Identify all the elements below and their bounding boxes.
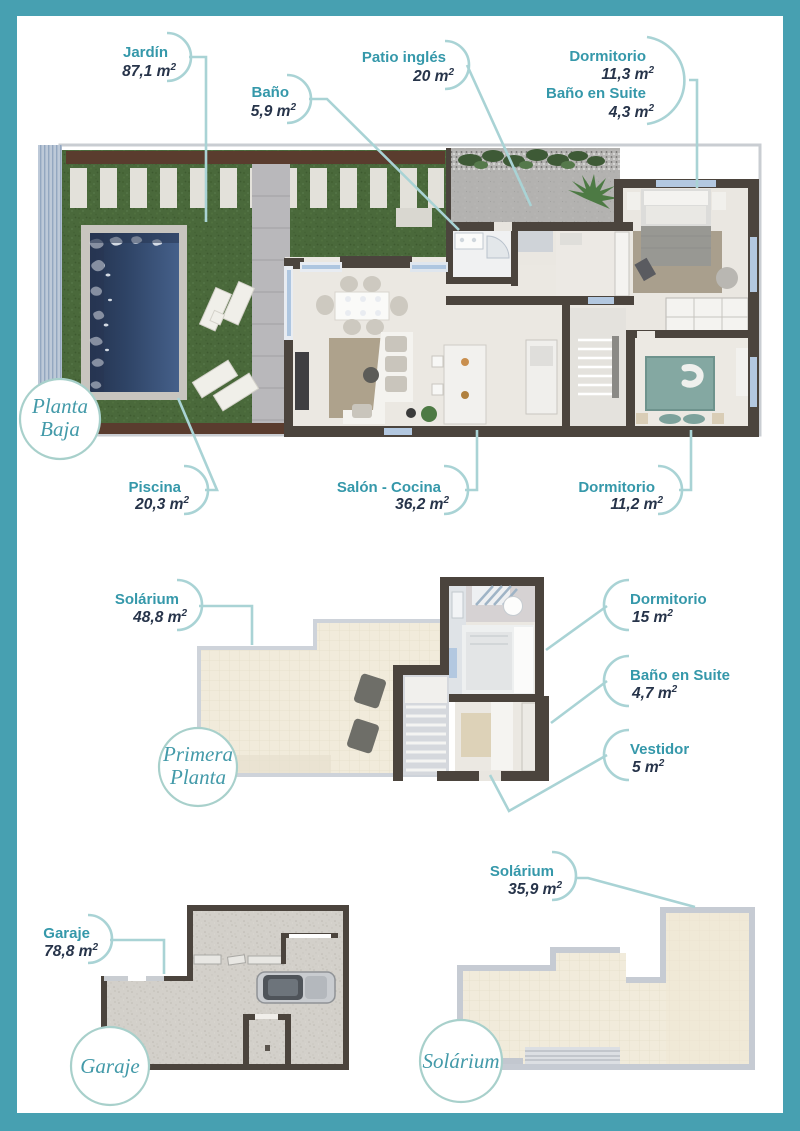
svg-text:Baño: Baño [252, 84, 290, 101]
svg-text:36,2 m2: 36,2 m2 [395, 495, 449, 513]
svg-text:11,3 m2: 11,3 m2 [601, 65, 654, 83]
svg-text:Baño en Suite: Baño en Suite [630, 667, 730, 684]
svg-text:Patio inglés: Patio inglés [362, 49, 446, 66]
svg-text:35,9 m2: 35,9 m2 [508, 880, 562, 898]
svg-text:20,3 m2: 20,3 m2 [134, 495, 189, 513]
svg-text:Planta: Planta [169, 765, 226, 789]
svg-text:4,3 m2: 4,3 m2 [608, 103, 655, 121]
svg-text:78,8 m2: 78,8 m2 [44, 942, 98, 960]
svg-text:87,1 m2: 87,1 m2 [122, 62, 176, 80]
svg-text:15 m2: 15 m2 [632, 608, 673, 626]
svg-text:Vestidor: Vestidor [630, 741, 689, 758]
svg-text:Planta: Planta [31, 394, 88, 418]
svg-text:20 m2: 20 m2 [412, 67, 454, 85]
svg-text:Dormitorio: Dormitorio [630, 591, 707, 608]
svg-text:Primera: Primera [162, 742, 233, 766]
svg-text:Solárium: Solárium [115, 591, 179, 608]
svg-text:Jardín: Jardín [123, 44, 168, 61]
svg-text:Solárium: Solárium [422, 1049, 499, 1073]
svg-text:Garaje: Garaje [43, 925, 90, 942]
svg-text:Baño en Suite: Baño en Suite [546, 85, 646, 102]
svg-text:Dormitorio: Dormitorio [578, 479, 655, 496]
svg-text:Solárium: Solárium [490, 863, 554, 880]
svg-text:Salón - Cocina: Salón - Cocina [337, 479, 442, 496]
svg-text:11,2 m2: 11,2 m2 [610, 495, 663, 513]
svg-text:Dormitorio: Dormitorio [569, 48, 646, 65]
svg-text:48,8 m2: 48,8 m2 [132, 608, 187, 626]
svg-text:5,9 m2: 5,9 m2 [251, 102, 297, 120]
svg-text:4,7 m2: 4,7 m2 [631, 684, 678, 702]
svg-text:Garaje: Garaje [80, 1054, 140, 1078]
svg-text:Baja: Baja [40, 417, 80, 441]
svg-text:Piscina: Piscina [128, 479, 181, 496]
